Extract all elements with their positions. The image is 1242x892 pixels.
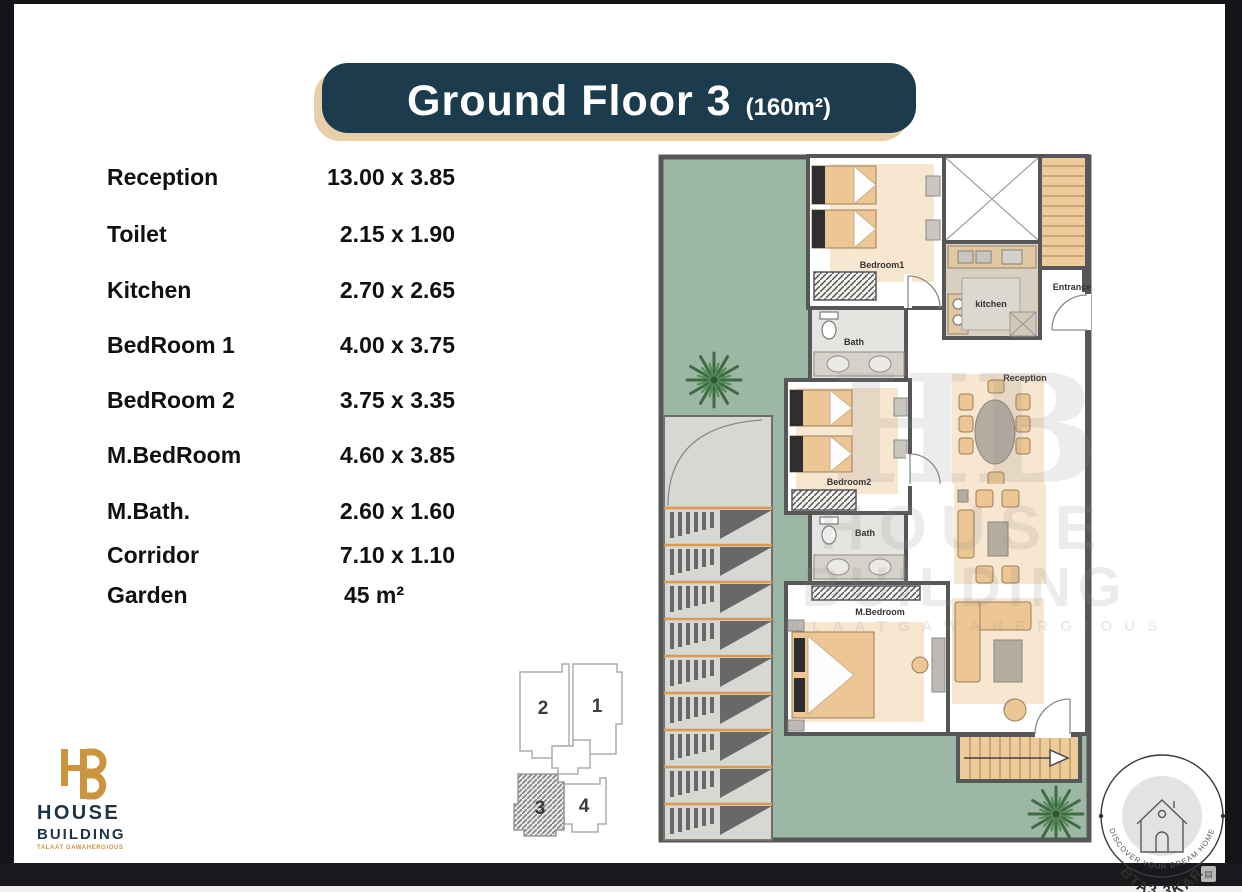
room-name: BedRoom 2 — [107, 387, 235, 414]
pergola-slats — [664, 506, 772, 840]
viewer-bottom-bar — [0, 863, 1242, 886]
room-name: Reception — [107, 164, 218, 191]
room-name: Corridor — [107, 542, 199, 569]
room-dims: 45 m² — [293, 582, 455, 609]
driveway — [664, 416, 772, 840]
bed — [790, 390, 852, 426]
double-bed — [788, 620, 874, 731]
wardrobe — [792, 490, 856, 510]
table-row: BedRoom 23.75 x 3.35 — [105, 387, 475, 419]
room-name: Toilet — [107, 221, 167, 248]
keyplan-number-3: 3 — [535, 798, 546, 819]
tv-carpet — [994, 640, 1022, 682]
sink — [869, 356, 891, 372]
room-dims: 4.00 x 3.75 — [293, 332, 455, 359]
master-bedroom-label: M.Bedroom — [855, 607, 905, 617]
reception-label: Reception — [1003, 373, 1047, 383]
badge-inner-circle — [1122, 776, 1202, 856]
room-dims: 2.60 x 1.60 — [293, 498, 455, 525]
room-dims: 7.10 x 1.10 — [293, 542, 455, 569]
stairs-bottom — [958, 735, 1080, 781]
closet — [812, 586, 920, 600]
wardrobe — [814, 272, 876, 300]
floor-plan: Bedroom1 Bath kitchen Entrance Reception… — [658, 154, 1102, 846]
table-row: Kitchen2.70 x 2.65 — [105, 277, 475, 309]
sofa — [958, 510, 974, 558]
dining-table — [975, 400, 1015, 464]
room-dims: 3.75 x 3.35 — [293, 387, 455, 414]
logo-name-line1: HOUSE — [37, 802, 157, 825]
bed — [812, 166, 876, 204]
desk-chair — [912, 657, 928, 673]
table-row: Garden45 m² — [105, 582, 475, 614]
table-row: M.Bath.2.60 x 1.60 — [105, 498, 475, 530]
sitting-set — [954, 484, 1046, 584]
room-name: M.BedRoom — [107, 442, 241, 469]
room-name: BedRoom 1 — [107, 332, 235, 359]
room-name: Kitchen — [107, 277, 191, 304]
sink — [869, 559, 891, 575]
sink — [827, 356, 849, 372]
bed — [790, 436, 852, 472]
key-plan: 2 1 3 4 — [512, 654, 628, 846]
logo-tagline: TALAAT GAWAHERGIOUS — [37, 845, 157, 851]
keyplan-number-2: 2 — [538, 698, 549, 719]
table-row: BedRoom 14.00 x 3.75 — [105, 332, 475, 364]
page-title-area: (160m²) — [746, 94, 831, 122]
kitchen-stove — [1002, 250, 1022, 264]
master-bedroom-room — [786, 583, 948, 734]
table-row: Reception13.00 x 3.85 — [105, 164, 475, 196]
room-dims: 13.00 x 3.85 — [293, 164, 455, 191]
company-logo: HOUSE BUILDING TALAAT GAWAHERGIOUS — [37, 748, 157, 851]
logo-monogram-icon — [55, 748, 157, 800]
kitchen-sink — [958, 251, 973, 263]
room-name: M.Bath. — [107, 498, 190, 525]
room-dims: 2.70 x 2.65 — [293, 277, 455, 304]
bath2-room — [810, 513, 906, 583]
room-name: Garden — [107, 582, 188, 609]
keyplan-number-4: 4 — [579, 796, 590, 817]
toilet — [820, 517, 838, 544]
coffee-table — [988, 522, 1008, 556]
room-dims: 2.15 x 1.90 — [293, 221, 455, 248]
bath1-label: Bath — [844, 337, 864, 347]
table-row: M.BedRoom4.60 x 3.85 — [105, 442, 475, 474]
bath2-label: Bath — [855, 528, 875, 538]
desk — [932, 638, 945, 692]
table-row: Corridor7.10 x 1.10 — [105, 542, 475, 574]
floorplan-sheet: Ground Floor 3 (160m²) Reception13.00 x … — [14, 4, 1225, 863]
kitchen-label: kitchen — [975, 299, 1007, 309]
dining-set — [952, 374, 1044, 485]
bedroom1-label: Bedroom1 — [860, 260, 905, 270]
bedroom1-room — [808, 156, 944, 308]
bedroom2-room — [786, 380, 910, 513]
agency-badge: BTA3 3KAR DISCOVER YOUR DREAM HOME — [1092, 746, 1232, 892]
room-dims: 4.60 x 3.85 — [293, 442, 455, 469]
logo-name-line2: BUILDING — [37, 826, 157, 843]
toilet — [820, 312, 838, 339]
bed — [812, 210, 876, 248]
viewer-bottom-strip — [0, 886, 1242, 892]
bedroom2-label: Bedroom2 — [827, 477, 872, 487]
kitchen-room — [944, 242, 1040, 338]
page-title: Ground Floor 3 — [407, 77, 732, 126]
title-banner: Ground Floor 3 (160m²) — [322, 63, 916, 133]
table-row: Toilet2.15 x 1.90 — [105, 221, 475, 253]
keyplan-number-1: 1 — [592, 696, 603, 717]
sink — [827, 559, 849, 575]
living-set — [952, 598, 1044, 721]
entrance-label: Entrance — [1053, 282, 1092, 292]
void-x — [944, 156, 1040, 242]
